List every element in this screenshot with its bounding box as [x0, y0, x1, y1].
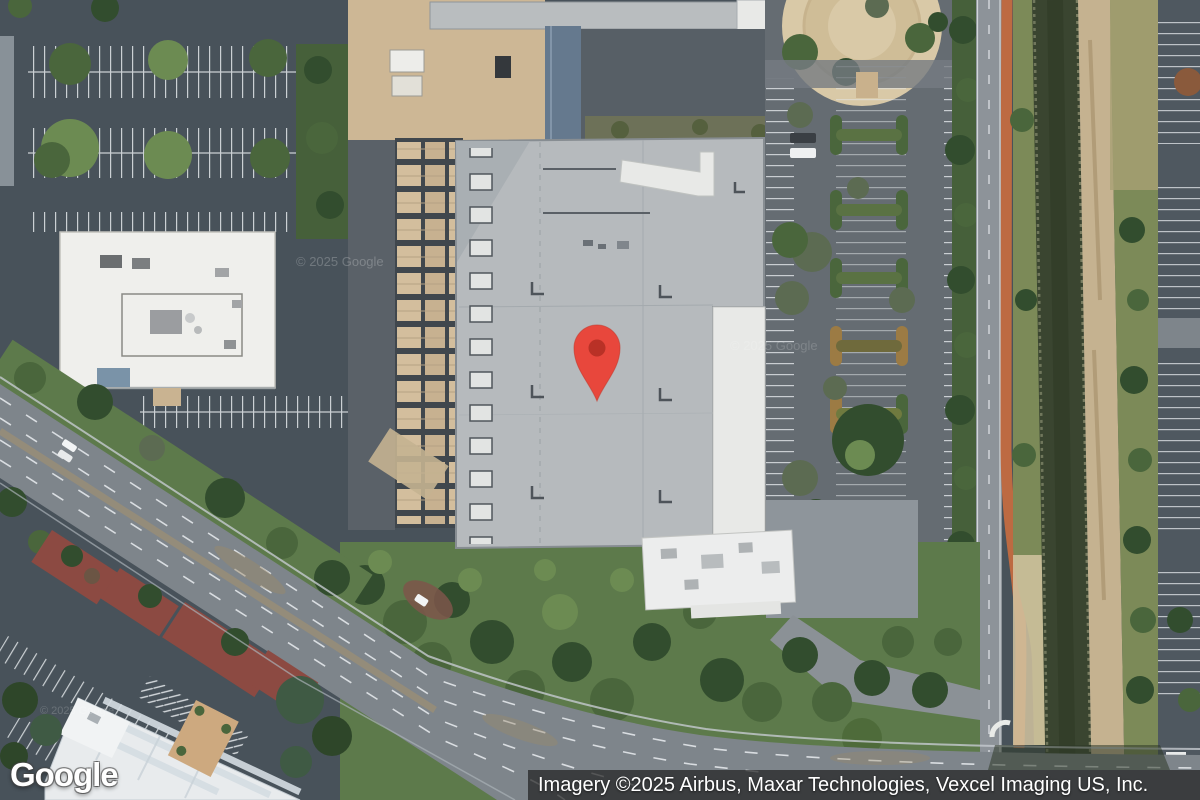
pin-inner-dot [589, 340, 606, 357]
office-building-west [60, 232, 275, 406]
parked-car-white [790, 148, 816, 158]
satellite-imagery: © 2025 Google © 2025 Google © 2025 Googl… [0, 0, 1200, 800]
attribution-text: Imagery ©2025 Airbus, Maxar Technologies… [538, 770, 1148, 800]
white-annex [642, 530, 796, 621]
parking-lot-far-east [1158, 0, 1200, 800]
attribution-bar: Imagery ©2025 Airbus, Maxar Technologies… [528, 770, 1200, 800]
roof-vents [469, 148, 495, 544]
parked-car-dark [790, 133, 816, 143]
svg-text:© 2025 Google: © 2025 Google [40, 705, 114, 717]
google-logo[interactable]: Google [10, 756, 118, 794]
walkway-strip [0, 36, 14, 186]
svg-text:© 2025 Google: © 2025 Google [296, 254, 384, 269]
svg-text:© 2025 Google: © 2025 Google [730, 338, 818, 353]
map-canvas[interactable]: © 2025 Google © 2025 Google © 2025 Googl… [0, 0, 1200, 800]
